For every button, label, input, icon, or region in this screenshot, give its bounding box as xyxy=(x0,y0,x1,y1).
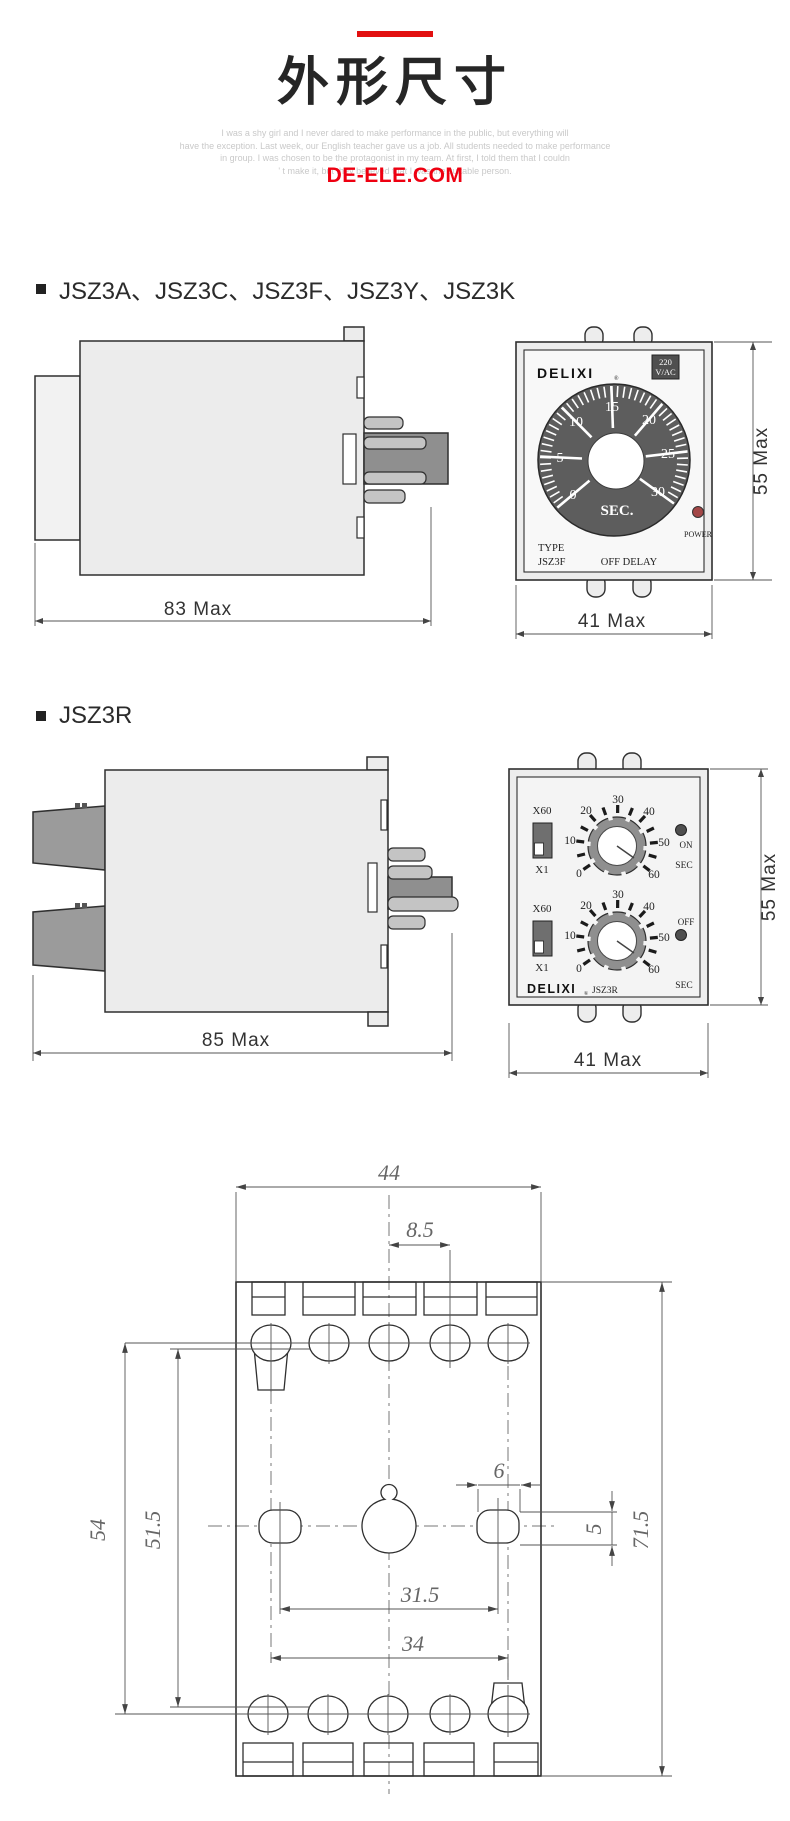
section-heading-label: JSZ3A、JSZ3C、JSZ3F、JSZ3Y、JSZ3K xyxy=(59,271,515,306)
dial-tick xyxy=(576,936,584,937)
dim-6 xyxy=(456,1485,542,1512)
dial-label: 10 xyxy=(564,835,576,847)
watermark-line: in group. I was chosen to be the protago… xyxy=(0,152,790,165)
registered-mark-icon: ® xyxy=(614,375,619,382)
dial-label: 10 xyxy=(564,930,576,942)
pin xyxy=(388,897,458,911)
dial-label: 60 xyxy=(648,869,660,881)
relay-body xyxy=(105,770,388,1012)
accent-bar xyxy=(357,31,433,37)
latch-slot xyxy=(381,800,387,830)
dial-label: 25 xyxy=(661,447,675,462)
dial-label: 30 xyxy=(612,794,624,806)
mounting-footprint-diagram: 44 8.5 6 5 31.5 xyxy=(80,1140,700,1821)
dim-label-5: 5 xyxy=(581,1524,606,1535)
dial-label: 20 xyxy=(580,900,592,912)
dial-tick xyxy=(577,949,585,951)
dial-label: 60 xyxy=(648,964,660,976)
voltage-value: 220 xyxy=(659,357,672,367)
range-high-label: X60 xyxy=(533,805,552,817)
off-led xyxy=(676,930,687,941)
pin xyxy=(364,472,426,484)
dial-label: 20 xyxy=(580,805,592,817)
dial-tick xyxy=(649,950,657,952)
power-led xyxy=(693,507,704,518)
dial-label: 15 xyxy=(605,400,619,415)
dial-label: 50 xyxy=(658,837,670,849)
dial-tick xyxy=(650,842,658,843)
dial-tick xyxy=(649,855,657,857)
middle-holes xyxy=(259,1484,519,1552)
dim-label-54: 54 xyxy=(85,1519,110,1541)
dim-label-width2: 41 Max xyxy=(574,1050,642,1071)
dim-label-width1: 41 Max xyxy=(578,611,646,632)
dial-tick xyxy=(677,464,688,465)
din-tab xyxy=(367,757,388,770)
dial-label: 40 xyxy=(643,806,655,818)
pin xyxy=(388,866,432,879)
pin xyxy=(364,417,403,429)
socket-block xyxy=(33,806,105,870)
model-label: JSZ3F xyxy=(538,557,566,568)
dim-label-height2: 55 Max xyxy=(759,853,780,921)
latch-slot xyxy=(368,863,377,912)
dial-label: 0 xyxy=(576,963,582,975)
site-name: DE-ELE.COM xyxy=(0,164,790,188)
socket-block xyxy=(33,906,105,971)
dim-label-51_5: 51.5 xyxy=(140,1511,165,1550)
dim-label-31_5: 31.5 xyxy=(400,1582,440,1607)
dial-tick xyxy=(577,854,585,856)
front-bezel xyxy=(35,376,80,540)
terminal-slot xyxy=(486,1282,537,1315)
din-tab xyxy=(344,327,364,341)
terminal-slot xyxy=(243,1743,293,1776)
on-led xyxy=(676,825,687,836)
model-label: JSZ3R xyxy=(592,986,619,996)
dial-label: 40 xyxy=(643,901,655,913)
brand-logo: DELIXI xyxy=(537,365,594,381)
dim-label-44: 44 xyxy=(378,1160,400,1185)
dim-label-6: 6 xyxy=(494,1458,505,1483)
switch-slider[interactable] xyxy=(535,941,544,953)
block-notch xyxy=(75,803,80,808)
mode-label: OFF DELAY xyxy=(601,557,658,568)
product-dimension-page: 外形尺寸 I was a shy girl and I never dared … xyxy=(0,0,790,1821)
dial-label: 0 xyxy=(570,488,577,503)
dim-label-depth2: 85 Max xyxy=(202,1030,270,1051)
dial-label: 10 xyxy=(569,415,583,430)
page-title: 外形尺寸 xyxy=(0,40,790,115)
dim-label-height1: 55 Max xyxy=(751,427,772,495)
terminal-slot xyxy=(424,1282,477,1315)
block-notch xyxy=(82,803,87,808)
watermark-line: I was a shy girl and I never dared to ma… xyxy=(0,127,790,140)
top-screw-row xyxy=(251,1325,528,1390)
dial-tick xyxy=(650,937,658,938)
square-bullet-icon xyxy=(36,284,46,294)
dial-tick xyxy=(576,841,584,842)
latch-slot xyxy=(357,517,364,538)
range-low-label: X1 xyxy=(535,962,548,974)
center-keyway-hole xyxy=(362,1484,416,1552)
dial-unit-label: SEC. xyxy=(601,503,634,519)
drawing-jsz3f: 83 Max DELIXI ® 220 V/AC 0 5 10 xyxy=(20,315,790,650)
dial-tick xyxy=(617,386,618,397)
dial-label: 30 xyxy=(612,889,624,901)
block-notch xyxy=(75,903,80,908)
dim-label-depth1: 83 Max xyxy=(164,599,232,620)
unit-label: SEC xyxy=(675,861,692,871)
dim-label-71_5: 71.5 xyxy=(628,1511,653,1550)
voltage-unit: V/AC xyxy=(655,367,676,377)
terminal-slot xyxy=(252,1282,285,1315)
side-view-jsz3r xyxy=(33,757,458,1026)
top-terminal-slots xyxy=(252,1282,537,1315)
dial-label: 50 xyxy=(658,932,670,944)
din-tab xyxy=(368,1012,388,1026)
section-heading-jsz3-models: JSZ3A、JSZ3C、JSZ3F、JSZ3Y、JSZ3K xyxy=(36,271,515,306)
off-label: OFF xyxy=(678,917,695,927)
dial-tick xyxy=(540,464,551,465)
terminal-slot xyxy=(424,1743,474,1776)
pin xyxy=(388,848,425,861)
type-label: TYPE xyxy=(538,543,564,554)
registered-mark-icon: ® xyxy=(584,990,588,997)
drawing-jsz3r: 85 Max 0 10 20 30 40 50 xyxy=(20,695,790,1080)
front-view-jsz3r: 0 10 20 30 40 50 60 X60 X1 ON SEC 0 xyxy=(509,753,708,1022)
range-high-label: X60 xyxy=(533,903,552,915)
side-view-jsz3f xyxy=(35,327,448,575)
switch-slider[interactable] xyxy=(535,843,544,855)
bottom-terminal-slots xyxy=(243,1743,538,1776)
watermark-line: have the exception. Last week, our Engli… xyxy=(0,140,790,153)
front-view-jsz3f: DELIXI ® 220 V/AC 0 5 10 15 20 25 30 SEC… xyxy=(516,327,713,597)
range-low-label: X1 xyxy=(535,864,548,876)
terminal-slot xyxy=(303,1282,355,1315)
terminal-slot xyxy=(303,1743,353,1776)
brand-logo: DELIXI xyxy=(527,982,576,996)
terminal-slot xyxy=(494,1743,538,1776)
relay-body xyxy=(80,341,364,575)
pin xyxy=(388,916,425,929)
latch-slot xyxy=(381,945,387,968)
dim-label-8_5: 8.5 xyxy=(406,1217,434,1242)
unit-label: SEC xyxy=(675,981,692,991)
pin xyxy=(364,437,426,449)
on-label: ON xyxy=(680,840,693,850)
dial-label: 30 xyxy=(651,485,665,500)
dial-label: 0 xyxy=(576,868,582,880)
latch-slot xyxy=(357,377,364,398)
dim-label-34: 34 xyxy=(401,1631,424,1656)
dial-label: 5 xyxy=(557,451,564,466)
block-notch xyxy=(82,903,87,908)
dial-label: 20 xyxy=(642,413,656,428)
latch-slot xyxy=(343,434,356,484)
pin xyxy=(364,490,405,503)
power-led-label: POWER xyxy=(684,530,713,539)
dial-knob-recess[interactable] xyxy=(588,433,644,489)
